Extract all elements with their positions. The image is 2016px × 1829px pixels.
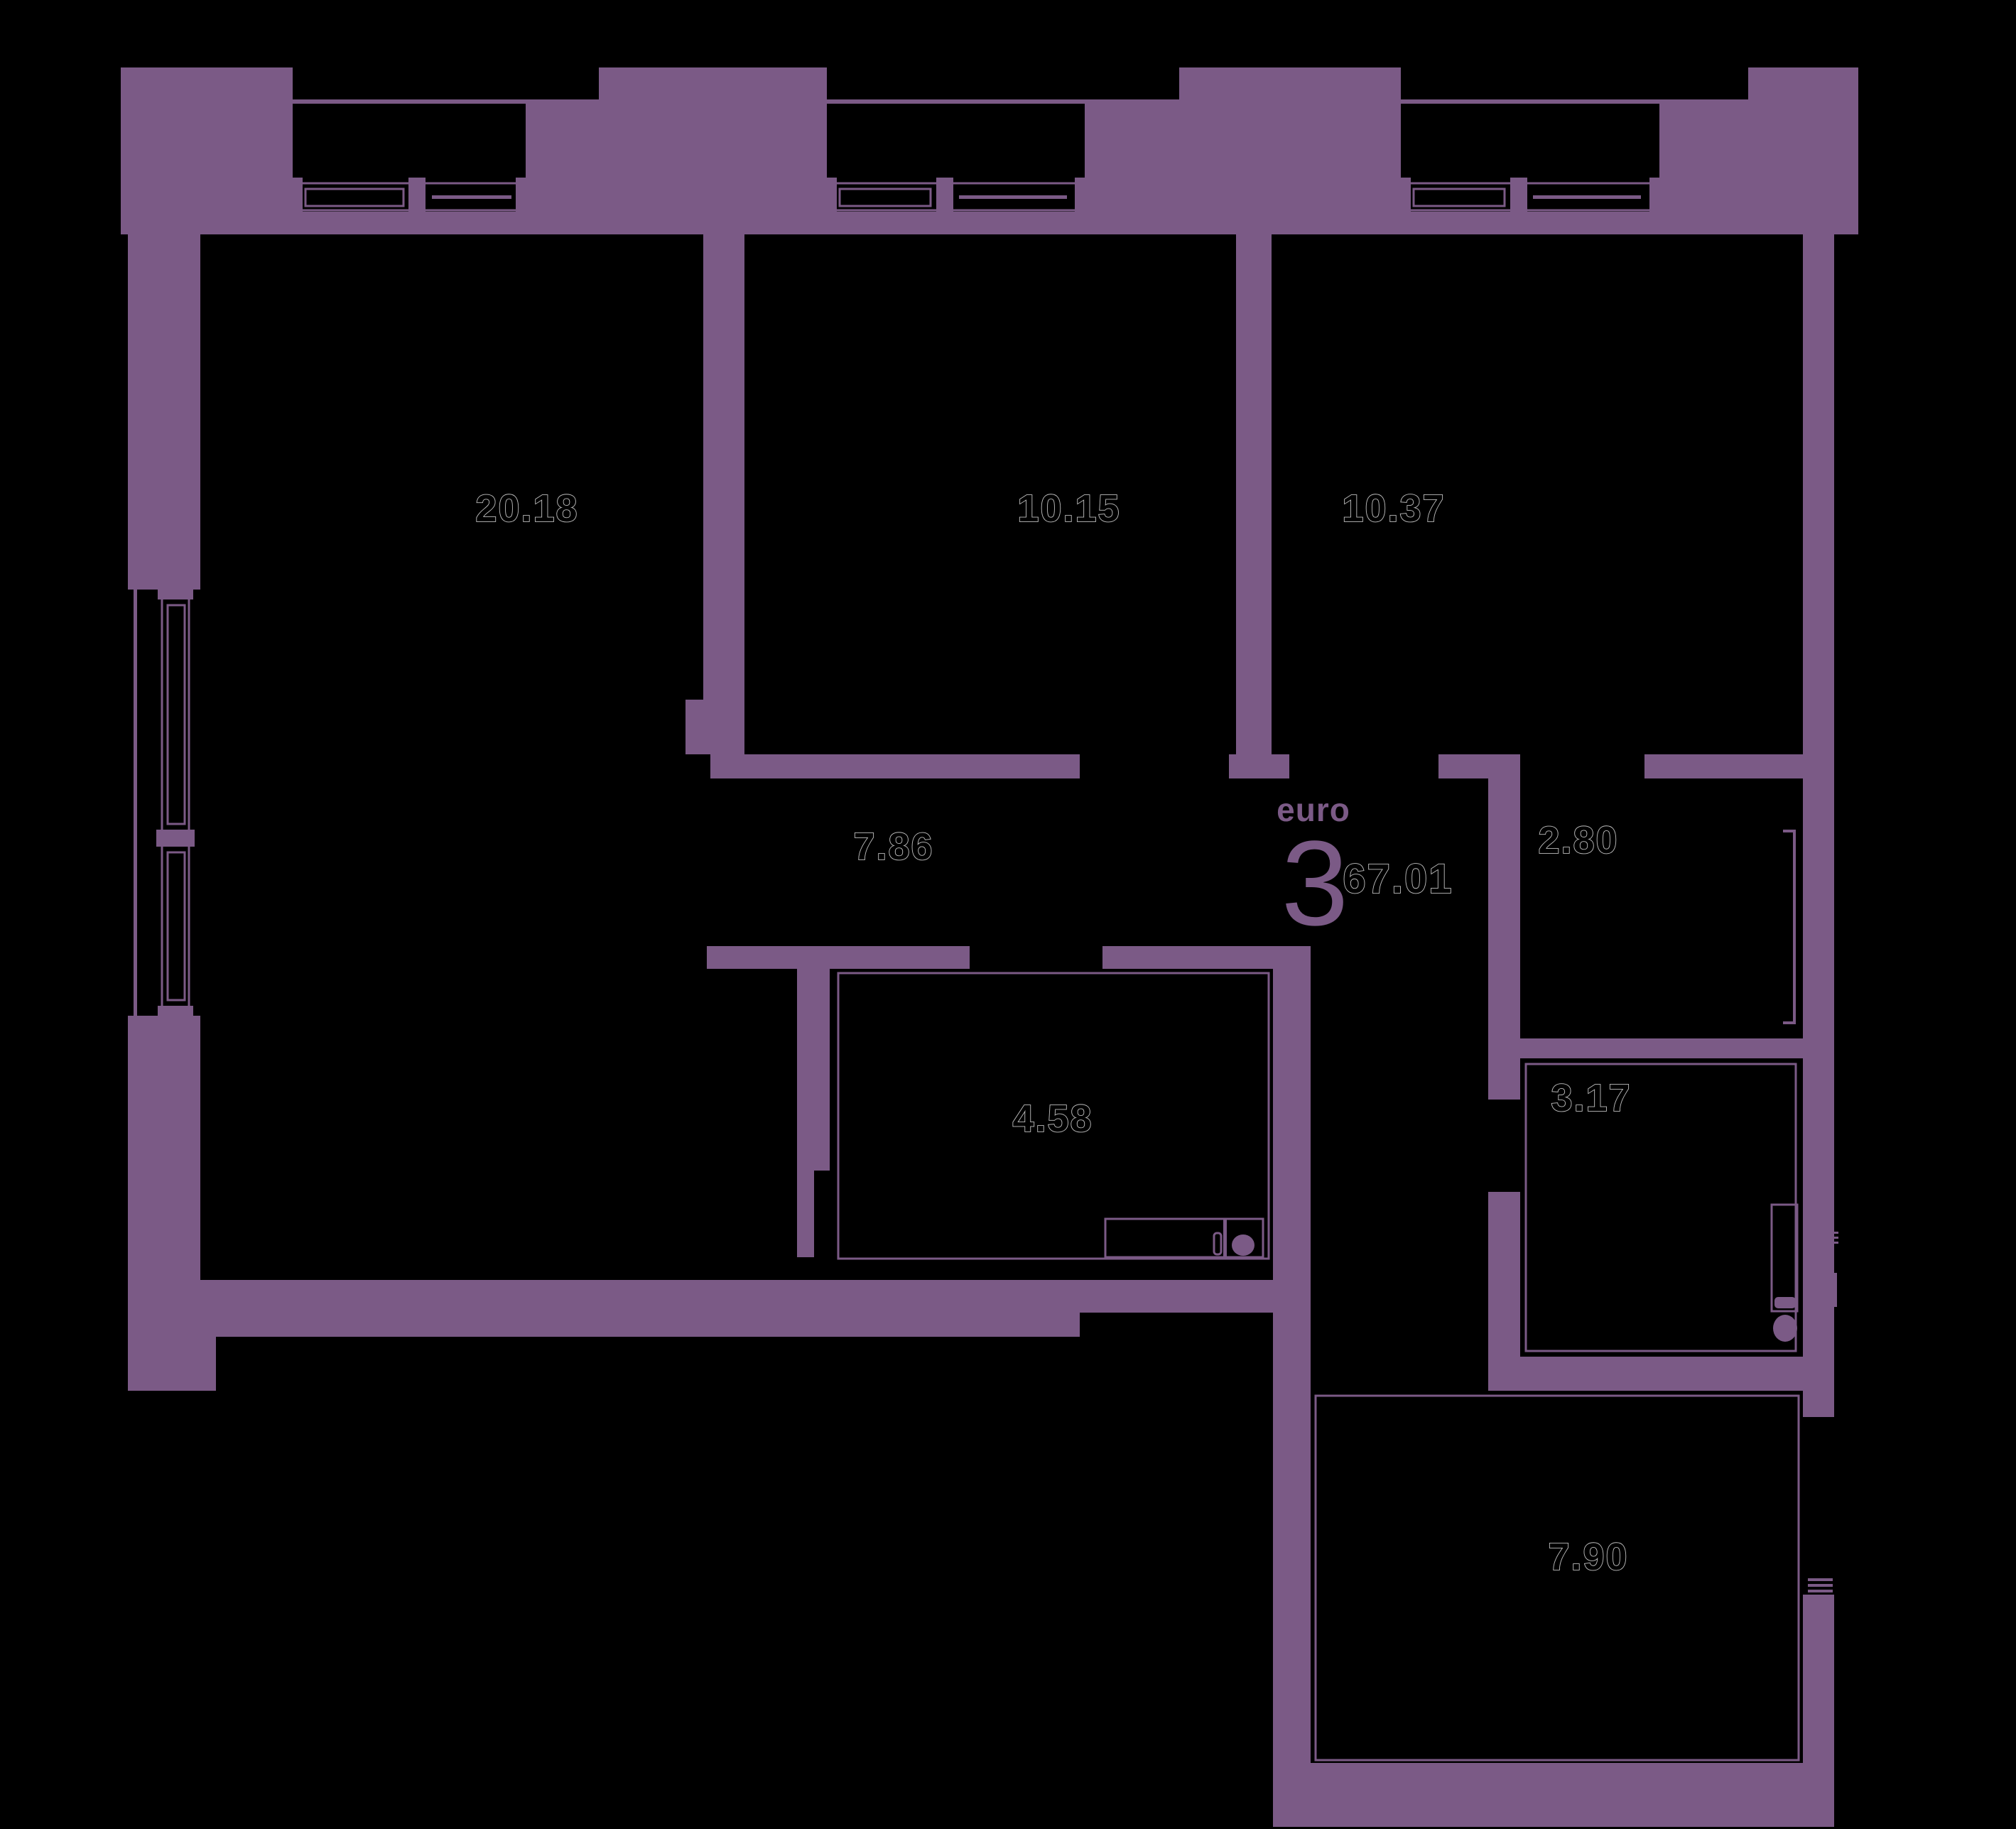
room-area-bathroom: 3.17 <box>1551 1077 1631 1119</box>
room-area-living: 20.18 <box>475 487 578 530</box>
window-mullion <box>1510 178 1527 216</box>
wall-segment <box>1401 99 1659 104</box>
wall-segment <box>1748 67 1858 234</box>
kitchen-counter <box>1105 1219 1263 1257</box>
labels: 20.18 10.15 10.37 7.86 2.80 4.58 3.17 7.… <box>475 487 1631 1578</box>
window-bedroom2-top <box>1401 178 1659 216</box>
window-sash <box>840 189 931 206</box>
wall-segment <box>526 99 599 234</box>
window-mullion <box>156 830 195 847</box>
window-outer-line <box>134 590 137 1016</box>
window-cap <box>1075 178 1085 216</box>
room-area-kitchen: 4.58 <box>1012 1097 1093 1140</box>
wall-segment <box>1236 234 1272 754</box>
vent-tick <box>1831 1242 1838 1244</box>
wall-segment <box>128 234 200 590</box>
wall-segment <box>1401 212 1659 234</box>
floor-plan-canvas: 20.18 10.15 10.37 7.86 2.80 4.58 3.17 7.… <box>0 0 2016 1829</box>
total-area: 67.01 <box>1343 856 1453 902</box>
window-pane-line <box>1533 195 1641 199</box>
window-sash <box>305 189 403 206</box>
window-balcony-right <box>1808 1578 1833 1592</box>
floor-plan: 20.18 10.15 10.37 7.86 2.80 4.58 3.17 7.… <box>0 0 2016 1829</box>
window-tick <box>1808 1578 1833 1581</box>
wardrobe-edge <box>1793 830 1796 1024</box>
apartment-type-badge: euro 3 67.01 <box>1277 791 1453 951</box>
wardrobe-tick <box>1783 830 1796 832</box>
window-tick <box>1808 1590 1833 1592</box>
wardrobe-line <box>1783 830 1796 1024</box>
wall-segment <box>1803 234 1834 1417</box>
window-sash <box>168 852 185 1000</box>
wall-segment <box>128 1337 216 1391</box>
wall-segment <box>1179 67 1401 234</box>
window-bedroom1-top <box>827 178 1085 216</box>
wall-segment <box>1229 754 1289 778</box>
toilet-cistern <box>1774 1297 1796 1308</box>
counter-divider <box>1223 1219 1227 1257</box>
wall-segment <box>1488 778 1520 1100</box>
vent-grille <box>1831 1232 1838 1244</box>
wall-segment <box>1438 754 1520 778</box>
wall-segment <box>827 212 1085 234</box>
window-cap <box>158 590 193 599</box>
wall-segment <box>1273 946 1311 1827</box>
wall-segment <box>1085 99 1179 234</box>
window-cap <box>1649 178 1659 216</box>
window-living-left <box>134 590 195 1016</box>
toilet <box>1772 1205 1797 1342</box>
wall-segment <box>797 1171 814 1257</box>
wall-segment <box>1520 1038 1808 1058</box>
window-cap <box>1401 178 1411 216</box>
window-pane-line <box>959 195 1067 199</box>
wall-segment <box>685 700 744 754</box>
toilet-bowl <box>1773 1315 1797 1342</box>
window-sash <box>1414 189 1505 206</box>
window-sash <box>168 605 185 824</box>
room-area-hallway: 7.86 <box>853 825 933 868</box>
window-cap <box>293 178 303 216</box>
window-cap <box>516 178 526 216</box>
window-cap <box>158 1006 193 1016</box>
wall-segment <box>1488 1357 1808 1391</box>
vent-tick <box>1831 1232 1838 1234</box>
wall-segment <box>1659 99 1748 234</box>
room-area-wardrobe: 2.80 <box>1538 819 1618 862</box>
room-area-bedroom1: 10.15 <box>1017 487 1120 530</box>
kitchen-sink <box>1232 1234 1254 1256</box>
window-cap <box>827 178 837 216</box>
shower-box <box>1772 1205 1797 1311</box>
wall-segment <box>128 1280 1080 1337</box>
room-area-balcony: 7.90 <box>1548 1536 1628 1578</box>
wall-segment <box>797 969 830 1171</box>
window-living-top <box>293 178 526 216</box>
wall-segment <box>703 234 744 700</box>
type-number: 3 <box>1281 816 1349 951</box>
wall-segment <box>1488 1192 1520 1365</box>
window-mullion <box>408 178 426 216</box>
wall-segment <box>128 1016 200 1280</box>
wall-segment <box>710 754 1080 778</box>
window-pane-line <box>432 195 511 199</box>
vent-tick <box>1831 1237 1838 1239</box>
wall-segment <box>1644 754 1808 778</box>
faucet <box>1214 1233 1221 1254</box>
wall-segment <box>1831 1273 1837 1307</box>
wall-segment <box>293 99 526 104</box>
wall-segment <box>599 67 827 234</box>
wardrobe-tick <box>1783 1021 1796 1024</box>
wall-segment <box>707 946 970 969</box>
window-mullion <box>936 178 953 216</box>
window-tick <box>1808 1584 1833 1587</box>
wall-segment <box>827 99 1085 104</box>
room-area-bedroom2: 10.37 <box>1342 487 1445 530</box>
wall-segment <box>121 67 293 234</box>
wall-segment <box>1311 1763 1834 1827</box>
